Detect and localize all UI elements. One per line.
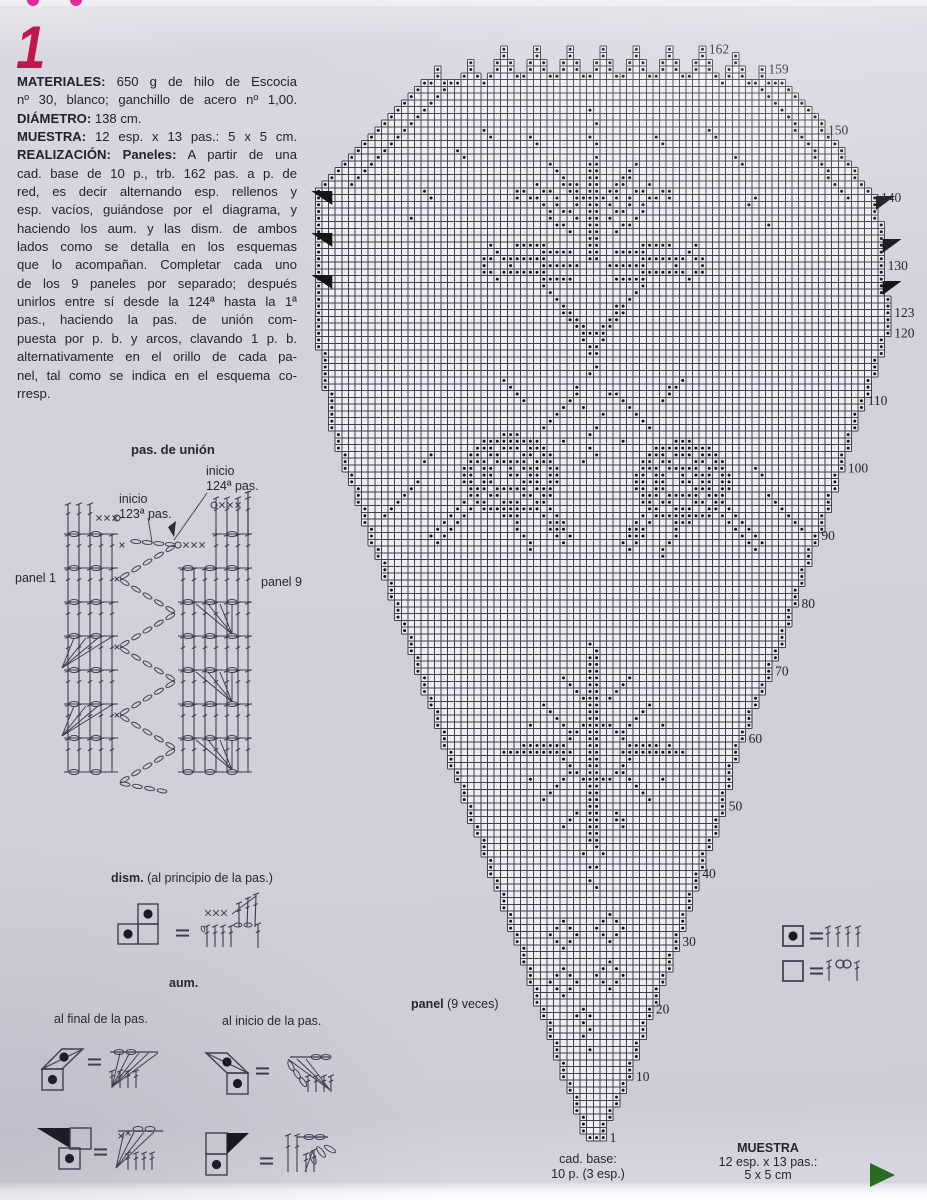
svg-text:100: 100 (848, 461, 869, 476)
svg-text:30: 30 (682, 934, 696, 949)
svg-text:123: 123 (894, 305, 915, 320)
svg-text:70: 70 (775, 663, 789, 678)
svg-text:10: 10 (636, 1069, 650, 1084)
svg-text:140: 140 (881, 190, 902, 205)
svg-text:162: 162 (709, 42, 729, 57)
svg-text:1: 1 (610, 1130, 617, 1145)
svg-text:150: 150 (828, 123, 849, 138)
svg-text:90: 90 (821, 528, 835, 543)
svg-text:50: 50 (729, 799, 743, 814)
svg-text:20: 20 (656, 1001, 670, 1016)
svg-text:120: 120 (894, 325, 915, 340)
svg-text:60: 60 (749, 731, 763, 746)
svg-text:159: 159 (768, 62, 789, 77)
svg-text:110: 110 (868, 393, 888, 408)
svg-text:130: 130 (888, 258, 909, 273)
svg-text:80: 80 (802, 596, 816, 611)
svg-text:40: 40 (702, 866, 716, 881)
